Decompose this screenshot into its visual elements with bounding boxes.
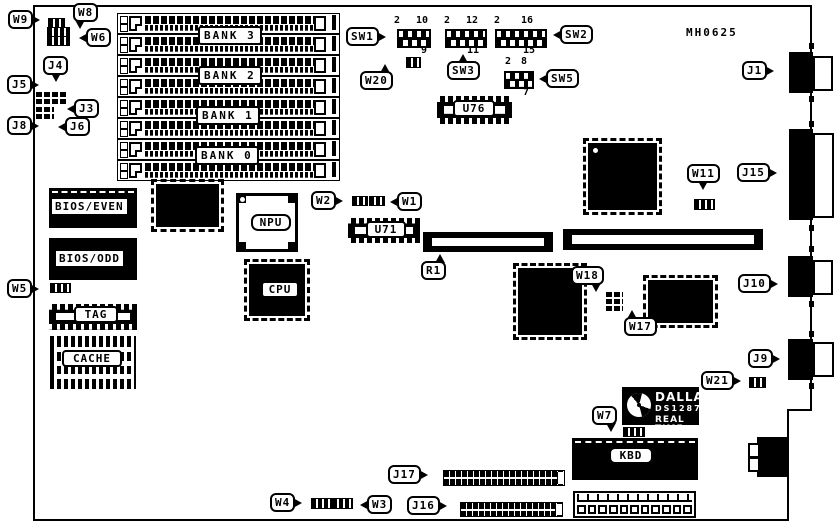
- callout-sw2: SW2: [560, 25, 593, 44]
- callout-j1: J1: [742, 61, 767, 80]
- callout-w20: W20: [360, 71, 393, 90]
- sw5-pin2: 2: [505, 56, 511, 67]
- resistor-pack-2: [563, 229, 763, 250]
- sw5-pin8: 8: [521, 56, 527, 67]
- callout-sw3: SW3: [447, 61, 480, 80]
- callout-w9: W9: [8, 10, 33, 29]
- w3-jumper: [332, 498, 353, 509]
- sw5-dip-switch: [504, 71, 534, 89]
- tag-label: TAG: [74, 306, 118, 323]
- board-edge-top: [33, 5, 812, 7]
- callout-w5: W5: [7, 279, 32, 298]
- rtc-chip: DALLAS DS1287 REAL TIME: [622, 387, 699, 425]
- gate-array-chip-right: [648, 280, 713, 323]
- j9-connector: [788, 339, 813, 380]
- sw2-pin2: 2: [494, 15, 500, 26]
- u71-label: U71: [366, 221, 406, 238]
- callout-j3: J3: [74, 99, 99, 118]
- clock-icon: [627, 393, 651, 417]
- cache-label: CACHE: [62, 350, 122, 367]
- cpu-label: CPU: [261, 281, 299, 298]
- callout-w1: W1: [397, 192, 422, 211]
- j15-connector-shell: [813, 133, 834, 218]
- edge-tick: [809, 301, 814, 307]
- sw1-pin9: 9: [421, 45, 427, 56]
- callout-w2: W2: [311, 191, 336, 210]
- din-tab: [748, 457, 760, 472]
- edge-tick: [809, 331, 814, 337]
- u76-label: U76: [453, 100, 495, 117]
- r1-resistor-pack: [423, 232, 553, 252]
- logic-chip: [156, 184, 219, 227]
- callout-j16: J16: [407, 496, 440, 515]
- j9-connector-shell: [813, 342, 834, 377]
- callout-j17: J17: [388, 465, 421, 484]
- j6-j8-pin-block: [36, 105, 54, 119]
- j17-header: [443, 470, 565, 486]
- sw3-pin2: 2: [444, 15, 450, 26]
- sw2-pin16: 16: [521, 15, 533, 26]
- rtc-type: REAL TIME: [655, 416, 713, 434]
- callout-j9: J9: [748, 349, 773, 368]
- pin1-dot: [240, 197, 245, 202]
- bank0-label: BANK 0: [195, 146, 259, 165]
- w1-jumper: [369, 196, 385, 206]
- w20-jumper: [406, 57, 421, 68]
- j16-header: [460, 502, 563, 517]
- sw3-dip-switch: [445, 29, 487, 48]
- w6-jumper: [47, 36, 70, 46]
- callout-r1: R1: [421, 261, 446, 280]
- bank3-label: BANK 3: [198, 26, 262, 45]
- npu-label: NPU: [251, 214, 291, 231]
- chipset-chip: [588, 143, 657, 210]
- callout-w11: W11: [687, 164, 720, 183]
- w4-jumper: [311, 498, 332, 509]
- callout-j4: J4: [43, 56, 68, 75]
- kbd-label: KBD: [611, 449, 651, 462]
- sw1-pin2: 2: [394, 15, 400, 26]
- keyboard-din-connector: [757, 437, 787, 477]
- motherboard-diagram: BANK 3 BANK 2 BANK 1 BANK 0 2 10 9 2 12 …: [0, 0, 836, 529]
- edge-tick: [809, 225, 814, 231]
- w7-jumper: [623, 427, 645, 437]
- callout-sw5: SW5: [546, 69, 579, 88]
- callout-j5: J5: [7, 75, 32, 94]
- callout-w6: W6: [86, 28, 111, 47]
- edge-tick: [809, 96, 814, 102]
- bank1-label: BANK 1: [196, 106, 260, 125]
- callout-w21: W21: [701, 371, 734, 390]
- pin1-dot: [593, 148, 598, 153]
- j15-connector: [789, 129, 813, 220]
- callout-w8: W8: [73, 3, 98, 22]
- bank2-label: BANK 2: [198, 66, 262, 85]
- callout-j8: J8: [7, 116, 32, 135]
- callout-j10: J10: [738, 274, 771, 293]
- edge-tick: [809, 246, 814, 252]
- bios-odd-label: BIOS/ODD: [56, 251, 123, 266]
- board-edge-right-lower: [787, 409, 789, 521]
- power-connector: [573, 491, 696, 518]
- rtc-model: DS1287: [655, 405, 713, 413]
- board-id: MH0625: [686, 26, 738, 39]
- din-tab: [748, 443, 760, 458]
- callout-sw1: SW1: [346, 27, 379, 46]
- callout-w17: W17: [624, 317, 657, 336]
- w5-jumper: [50, 283, 71, 293]
- sw5-pin7: 7: [523, 87, 529, 98]
- j1-connector: [789, 52, 813, 93]
- callout-j6: J6: [65, 117, 90, 136]
- sw3-pin12: 12: [466, 15, 478, 26]
- edge-tick: [809, 121, 814, 127]
- j10-connector-shell: [813, 260, 833, 295]
- edge-tick: [809, 383, 814, 389]
- callout-w7: W7: [592, 406, 617, 425]
- w2-jumper: [352, 196, 368, 206]
- w21-jumper: [749, 377, 766, 388]
- j10-connector: [788, 256, 813, 297]
- rtc-brand: DALLAS: [655, 391, 713, 403]
- bios-even-label: BIOS/EVEN: [52, 199, 127, 214]
- w11-jumper: [694, 199, 715, 210]
- j1-connector-shell: [813, 56, 833, 91]
- callout-j15: J15: [737, 163, 770, 182]
- callout-w4: W4: [270, 493, 295, 512]
- sw1-pin10: 10: [416, 15, 428, 26]
- board-edge-step: [787, 409, 812, 411]
- callout-w3: W3: [367, 495, 392, 514]
- board-edge-bottom: [33, 519, 789, 521]
- j3-j4-j5-pin-block: [36, 91, 67, 104]
- sw3-pin11: 11: [467, 45, 479, 56]
- sw2-dip-switch: [495, 29, 547, 48]
- callout-w18: W18: [571, 266, 604, 285]
- w18-w17-pin-block: [606, 291, 623, 311]
- edge-tick: [809, 43, 814, 49]
- sw2-pin15: 15: [523, 45, 535, 56]
